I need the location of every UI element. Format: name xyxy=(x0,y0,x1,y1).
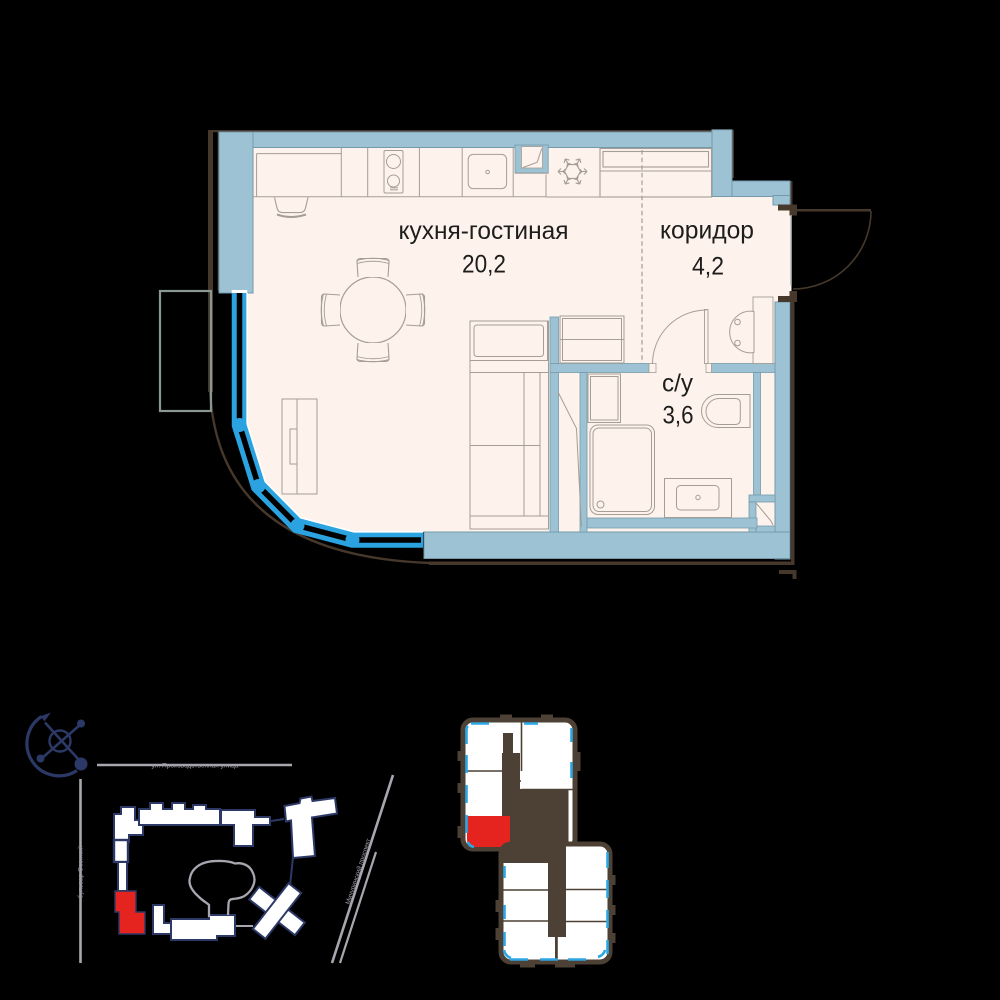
svg-text:4,2: 4,2 xyxy=(692,253,724,281)
svg-text:3,6: 3,6 xyxy=(663,402,694,430)
svg-text:20,2: 20,2 xyxy=(462,251,506,279)
svg-text:кухня-гостиная: кухня-гостиная xyxy=(399,217,569,245)
svg-text:ул. Производственная улица: ул. Производственная улица xyxy=(152,763,239,770)
svg-text:с/у: с/у xyxy=(662,370,693,398)
svg-text:коридор: коридор xyxy=(660,217,754,245)
svg-text:бульвар Осенний: бульвар Осенний xyxy=(77,845,85,898)
